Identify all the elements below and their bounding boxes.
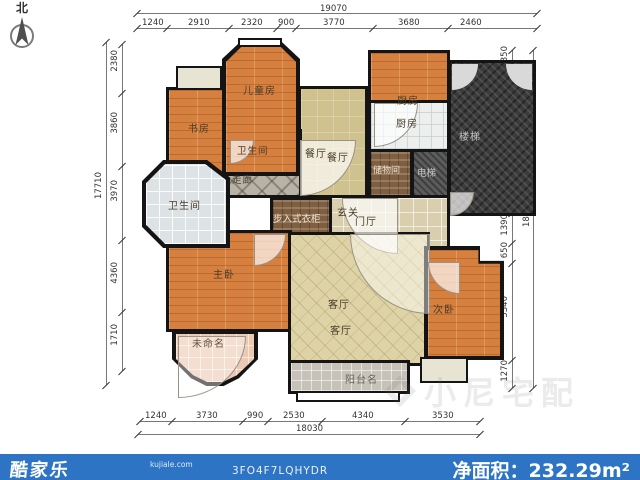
dim-left-seg-1: 3860 xyxy=(110,112,120,134)
room-label-study: 书房 xyxy=(188,120,210,135)
room-label-bath-large: 卫生间 xyxy=(168,197,201,212)
dim-bottom-seg-3: 2530 xyxy=(283,411,305,421)
dim-right-seg-2: 1390 xyxy=(500,214,510,236)
room-label-kitchen-a: 厨房 xyxy=(397,92,419,107)
net-area-label: 净面积：232.29m² xyxy=(453,456,630,480)
room-label-dining-b: 餐厅 xyxy=(327,149,349,164)
dim-bottom-seg-1: 3730 xyxy=(196,411,218,421)
dim-bottom-total-line xyxy=(138,434,480,435)
room-label-dining-a: 餐厅 xyxy=(305,145,327,160)
dim-top-seg-0: 1240 xyxy=(142,18,164,28)
dim-top-seg-4: 3770 xyxy=(323,18,345,28)
dim-top-seg-6: 2460 xyxy=(460,18,482,28)
compass: 北 xyxy=(6,2,38,54)
dim-left-total: 17710 xyxy=(94,172,104,199)
compass-needle-icon xyxy=(7,14,37,50)
floorplan-canvas: 北 xyxy=(0,0,640,480)
compass-north-label: 北 xyxy=(6,2,38,14)
watermark: 小尼宅配 xyxy=(382,368,580,414)
footer-bar: 酷家乐 kujiale.com 3FO4F7LQHYDR 净面积：232.29m… xyxy=(0,454,640,480)
dim-bottom-seg-line xyxy=(140,421,480,422)
room-label-kitchen-b: 厨房 xyxy=(396,115,418,130)
plan-code: 3FO4F7LQHYDR xyxy=(232,465,328,477)
room-label-foyer: 门厅 xyxy=(355,213,377,228)
dim-bottom-seg-2: 990 xyxy=(247,411,263,421)
room-label-stairs: 楼梯 xyxy=(459,128,481,143)
room-label-corridor: 走廊 xyxy=(232,172,253,186)
kujiale-logo: 酷家乐 xyxy=(9,456,72,480)
room-label-closet: 步入式衣柜 xyxy=(273,211,321,225)
dim-top-seg-5: 3680 xyxy=(398,18,420,28)
room-label-elevator: 电梯 xyxy=(417,165,436,179)
dim-top-total: 19070 xyxy=(320,4,347,14)
room-label-balcony: 阳台名 xyxy=(345,371,378,386)
children-bay-window xyxy=(238,38,282,47)
kujiale-domain: kujiale.com xyxy=(150,460,193,469)
room-label-children: 儿童房 xyxy=(243,82,276,97)
dim-bottom-total: 18030 xyxy=(296,424,323,434)
dim-top-seg-3: 900 xyxy=(278,18,294,28)
dim-bottom-seg-4: 4340 xyxy=(352,411,374,421)
watermark-house-icon xyxy=(382,373,418,409)
room-label-living-a: 客厅 xyxy=(328,296,350,311)
room-label-storage: 储物间 xyxy=(373,163,400,176)
dim-bottom-seg-0: 1240 xyxy=(145,411,167,421)
watermark-text: 小尼宅配 xyxy=(424,368,580,414)
dim-left-seg-0: 2380 xyxy=(110,50,120,72)
dim-left-seg-2: 3970 xyxy=(110,180,120,202)
room-label-unnamed: 未命名 xyxy=(192,335,225,350)
dim-top-seg-2: 2320 xyxy=(241,18,263,28)
dim-top-seg-line xyxy=(137,28,537,29)
room-label-master: 主卧 xyxy=(213,266,235,281)
study-window xyxy=(176,66,222,90)
room-label-living-b: 客厅 xyxy=(330,322,352,337)
dim-left-seg-3: 4360 xyxy=(110,262,120,284)
room-label-bath-small: 卫生间 xyxy=(237,143,269,157)
dim-left-seg-4: 1710 xyxy=(110,324,120,346)
dim-left-total-line xyxy=(106,42,107,385)
room-label-second: 次卧 xyxy=(433,301,455,316)
dim-top-seg-1: 2910 xyxy=(188,18,210,28)
